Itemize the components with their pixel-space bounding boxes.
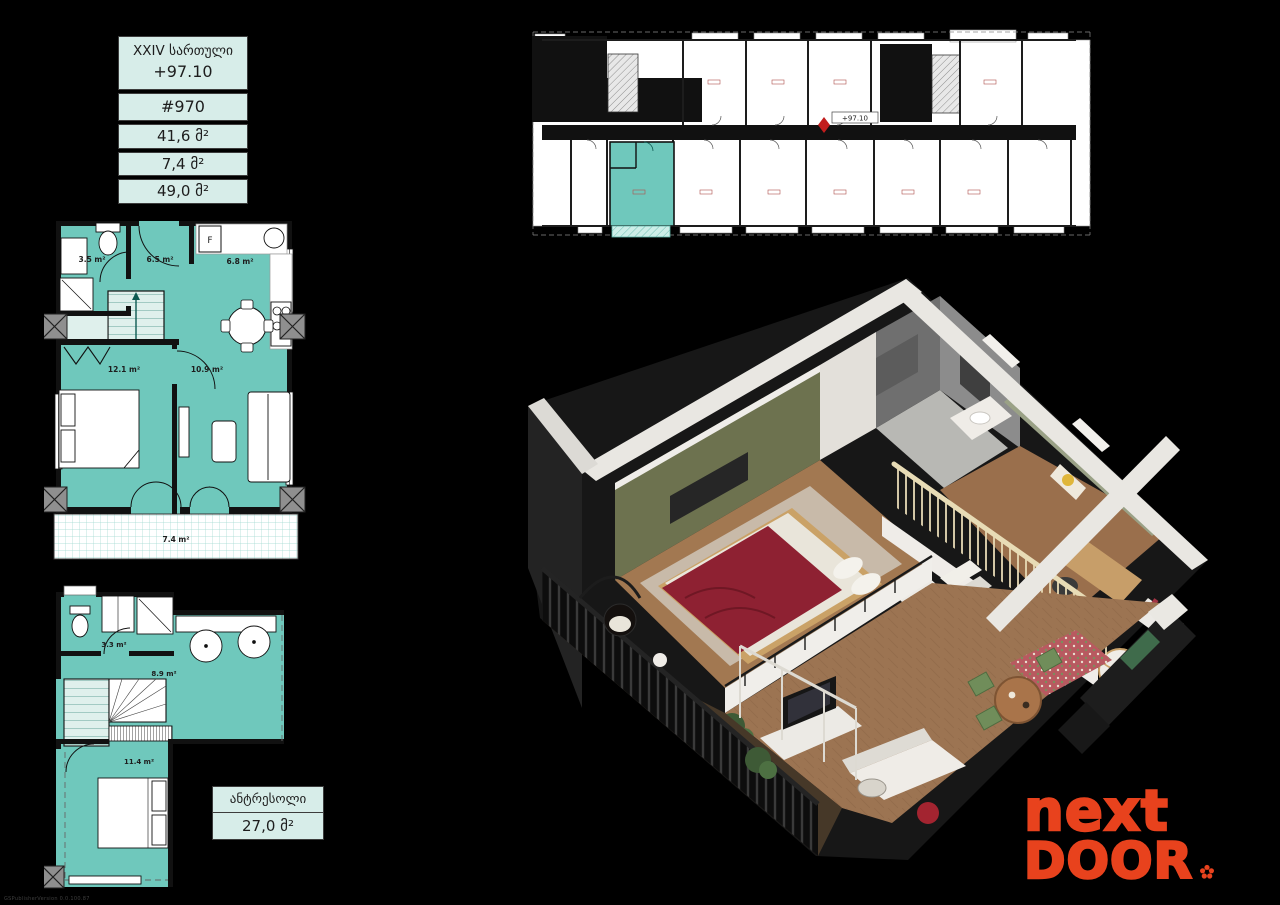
coffee-table bbox=[212, 421, 236, 462]
render-coffee-table bbox=[858, 779, 886, 797]
nextdoor-logo: next DOOR bbox=[1024, 786, 1215, 884]
mezz-toilet-bowl bbox=[72, 615, 88, 637]
area-balcony: 7,4 მ² bbox=[118, 152, 248, 177]
stairs-right bbox=[932, 55, 960, 113]
corridor bbox=[542, 125, 1076, 140]
mezzanine-area: 27,0 მ² bbox=[212, 812, 324, 840]
bathroom-area-label: 3.5 m² bbox=[79, 255, 106, 264]
mezz-toilet-tank bbox=[70, 606, 90, 614]
unit-number: #970 bbox=[118, 93, 248, 121]
watermark: GSPublisherVersion 0.0.100.87 bbox=[4, 896, 90, 902]
floor-row: XXIV სართული +97.10 bbox=[118, 36, 248, 90]
mezz-entry bbox=[64, 586, 96, 595]
highlighted-unit bbox=[610, 142, 674, 237]
fridge-label: F bbox=[207, 236, 212, 246]
stair-core-left-block bbox=[532, 36, 607, 122]
logo-flower-icon bbox=[1199, 864, 1215, 880]
floor-elevation: +97.10 bbox=[121, 62, 245, 82]
logo-line1: next bbox=[1024, 786, 1215, 838]
mezzanine-plan: 3.3 m² 8.9 m² 11.4 m² bbox=[44, 584, 292, 905]
mezz-column bbox=[44, 866, 64, 888]
sofa bbox=[248, 392, 290, 482]
area-total: 49,0 მ² bbox=[118, 179, 248, 204]
mezzanine-label: ანტრესოლი bbox=[212, 786, 324, 812]
apartment-plan: 7.4 m² bbox=[44, 214, 312, 566]
area-living: 41,6 მ² bbox=[118, 124, 248, 149]
living-area-label: 10.9 m² bbox=[191, 365, 223, 374]
stairs-left bbox=[608, 54, 638, 112]
render-red-chair bbox=[917, 802, 939, 824]
unit-info-table: XXIV სართული +97.10 #970 41,6 მ² 7,4 მ² … bbox=[118, 36, 248, 207]
plan-balcony: 7.4 m² bbox=[54, 514, 298, 559]
strip-body: +97.10 bbox=[532, 30, 1090, 237]
kitchen-area-label: 6.8 m² bbox=[227, 257, 254, 266]
mezz-shelf bbox=[69, 876, 141, 884]
mezz-bathroom-area-label: 3.3 m² bbox=[101, 641, 126, 649]
highlighted-unit-balcony bbox=[612, 226, 670, 237]
tv-stand bbox=[179, 407, 189, 457]
render-balcony-table bbox=[653, 653, 667, 667]
mezz-bedroom-area-label: 11.4 m² bbox=[124, 758, 154, 766]
toilet-bowl bbox=[99, 231, 117, 255]
mezz-wardrobe bbox=[109, 726, 172, 741]
bedroom-area-label: 12.1 m² bbox=[108, 365, 140, 374]
balcony-area-label: 7.4 m² bbox=[163, 535, 190, 544]
elevation-marker-text: +97.10 bbox=[842, 115, 868, 123]
mezz-hall-area-label: 8.9 m² bbox=[151, 670, 176, 678]
logo-line2: DOOR bbox=[1024, 838, 1193, 884]
building-level-plan: +97.10 bbox=[532, 28, 1092, 240]
brochure-sheet: XXIV სართული +97.10 #970 41,6 მ² 7,4 მ² … bbox=[0, 0, 1280, 905]
floor-label: XXIV სართული bbox=[121, 43, 245, 60]
stair-core-right-block bbox=[880, 44, 932, 122]
hall-area-label: 6.5 m² bbox=[147, 255, 174, 264]
sink bbox=[264, 228, 284, 248]
dining-table bbox=[228, 307, 266, 345]
render-3d bbox=[520, 268, 1220, 868]
mezzanine-info-table: ანტრესოლი 27,0 მ² bbox=[212, 786, 324, 840]
render-dining-table bbox=[995, 677, 1041, 723]
